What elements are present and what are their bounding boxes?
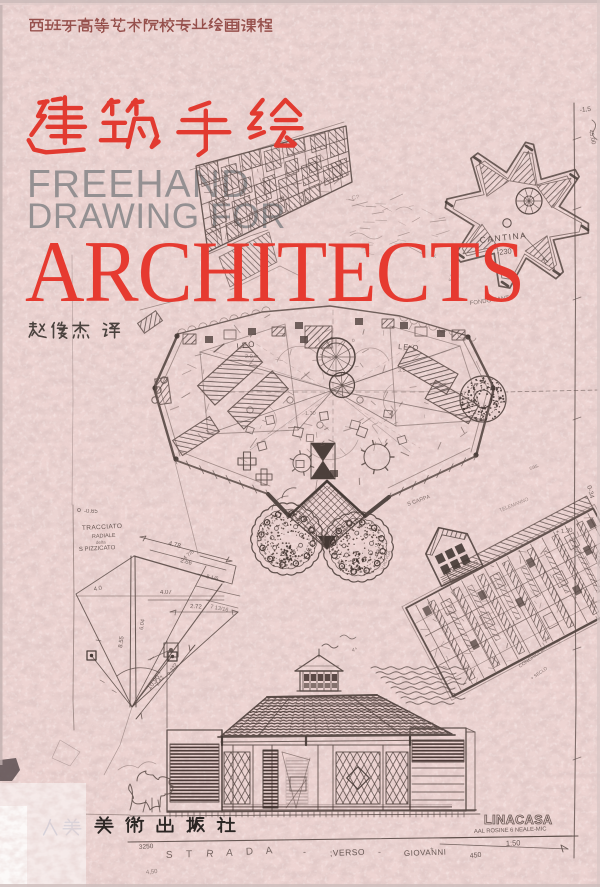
svg-text:delta: delta (96, 539, 107, 545)
svg-text:-: - (303, 847, 306, 857)
svg-text:3.5: 3.5 (398, 368, 406, 374)
svg-text:LINACASA: LINACASA (484, 813, 553, 827)
svg-text:R: R (206, 848, 214, 860)
svg-text:T: T (186, 849, 192, 860)
svg-text:4,50: 4,50 (146, 869, 159, 876)
svg-text:A: A (226, 848, 234, 859)
svg-text:GIOVANNI: GIOVANNI (404, 848, 447, 858)
svg-text:450: 450 (469, 852, 481, 860)
svg-text:2.72: 2.72 (190, 604, 203, 611)
svg-text:D: D (246, 846, 254, 857)
svg-text:4.07: 4.07 (160, 590, 172, 596)
svg-text:S: S (166, 850, 173, 861)
svg-text:;VERSO: ;VERSO (330, 847, 365, 858)
svg-text:3250: 3250 (139, 843, 154, 851)
svg-text:1.30: 1.30 (305, 411, 316, 417)
svg-text:-: - (378, 847, 381, 857)
svg-text:+: + (430, 847, 434, 853)
svg-text:-0.65: -0.65 (84, 509, 98, 515)
svg-text:2.0: 2.0 (245, 354, 253, 360)
svg-text:-1,5: -1,5 (579, 106, 591, 114)
